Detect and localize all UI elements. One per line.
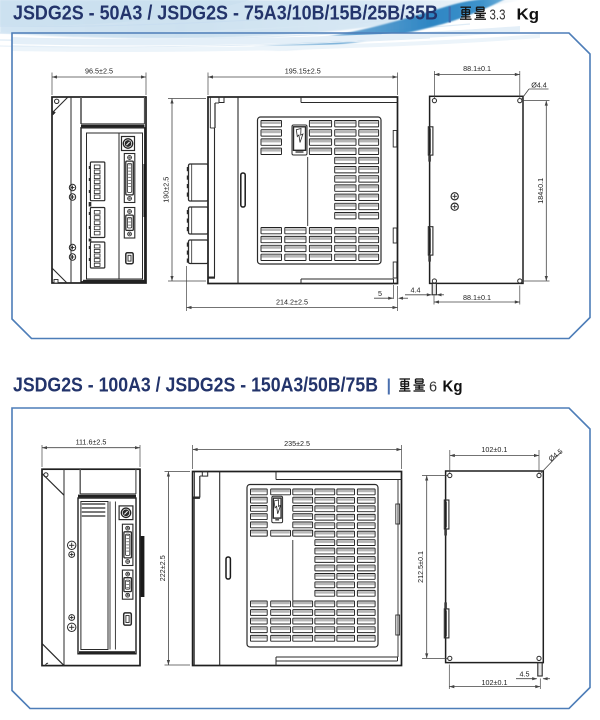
svg-text:96.5±2.5: 96.5±2.5 <box>85 67 113 76</box>
svg-text:5: 5 <box>378 289 382 298</box>
svg-text:102±0.1: 102±0.1 <box>482 678 508 687</box>
svg-text:184±0.1: 184±0.1 <box>536 178 545 204</box>
svg-text:235±2.5: 235±2.5 <box>284 439 310 448</box>
svg-text:JSDG2S - 100A3 / JSDG2S - 150A: JSDG2S - 100A3 / JSDG2S - 150A3/50B/75B <box>13 375 378 397</box>
svg-text:222±2.5: 222±2.5 <box>158 555 167 581</box>
svg-text:4.5: 4.5 <box>520 669 530 678</box>
svg-text:Ø4.4: Ø4.4 <box>531 81 547 90</box>
svg-text:JSDG2S - 50A3 / JSDG2S - 75A3/: JSDG2S - 50A3 / JSDG2S - 75A3/10B/15B/25… <box>13 3 438 25</box>
svg-text:214.2±2.5: 214.2±2.5 <box>276 298 308 307</box>
svg-text:Ø4.5: Ø4.5 <box>547 447 565 464</box>
svg-text:88.1±0.1: 88.1±0.1 <box>463 293 491 302</box>
svg-text:Kg: Kg <box>443 378 463 395</box>
svg-text:3.3: 3.3 <box>490 8 506 24</box>
svg-text:4.4: 4.4 <box>411 286 421 295</box>
svg-text:Kg: Kg <box>517 7 540 24</box>
svg-text:212.5±0.1: 212.5±0.1 <box>416 551 425 583</box>
svg-text:88.1±0.1: 88.1±0.1 <box>463 64 491 73</box>
svg-text:195.15±2.5: 195.15±2.5 <box>285 67 321 76</box>
svg-text:190±2.5: 190±2.5 <box>162 177 171 203</box>
svg-text:102±0.1: 102±0.1 <box>481 445 507 454</box>
svg-text:111.6±2.5: 111.6±2.5 <box>76 437 107 446</box>
svg-text:6: 6 <box>429 379 437 395</box>
